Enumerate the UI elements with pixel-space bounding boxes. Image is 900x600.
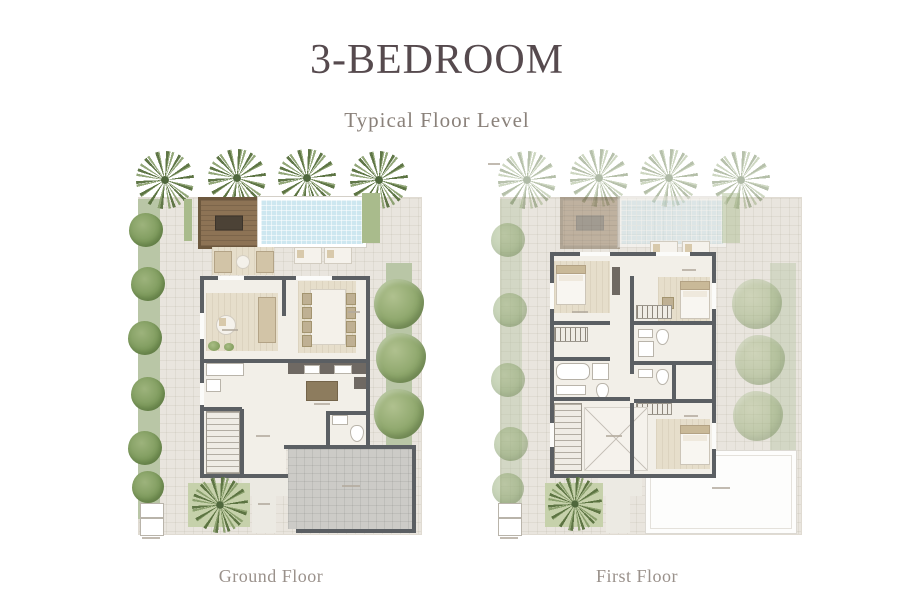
hedge [362,193,380,243]
room-label [348,311,360,313]
plant-icon [208,341,220,351]
dining-chair [346,321,356,333]
kitchen-counter [288,363,366,374]
window [550,283,554,309]
wall-segment [552,321,610,325]
wall-segment [412,445,416,533]
garage-area [288,449,412,529]
bathtub [556,363,590,380]
window [218,276,244,280]
shrub-icon [493,293,527,327]
room-label [712,487,730,489]
coffee-table [236,255,250,269]
wall-segment [550,252,716,256]
bathroom-sink [332,415,348,425]
shower [638,341,654,357]
window [580,252,610,256]
lounge-chair [324,247,352,264]
shrub-icon [131,267,165,301]
utility-box [140,503,164,518]
caption-first-floor: First Floor [488,566,786,587]
wardrobe [554,327,588,342]
entry-walkway [606,496,630,533]
wall-segment [552,357,610,361]
void-double-height [584,407,648,471]
wall-segment [630,276,634,374]
room-label [682,269,696,271]
shrub-icon [494,427,528,461]
bathroom-sink [638,369,653,378]
palm-tree-icon [192,477,248,533]
shrub-icon [129,213,163,247]
entry-walkway [252,496,276,533]
room-label [488,163,500,165]
cooktop [334,365,352,374]
sofa [258,297,276,343]
wall-segment [634,321,712,325]
wall-segment [202,407,242,411]
page-subtitle: Typical Floor Level [87,108,787,133]
floorplan-ground-floor [122,163,420,545]
staircase [554,403,582,471]
shrub-icon [492,473,524,505]
room-label [572,311,588,313]
washer [206,379,221,392]
shrub-icon [132,471,164,503]
brochure-page: 3-BEDROOM Typical Floor Level [0,0,900,600]
sun-deck [198,197,260,249]
wall-segment [634,399,712,403]
wardrobe [636,305,672,319]
outdoor-sofa [256,251,274,273]
wall-segment [326,411,330,445]
room-label [684,415,698,417]
wall-segment [296,529,416,533]
fridge [354,377,366,389]
staircase [206,411,240,474]
dining-chair [302,335,312,347]
room-label [256,435,270,437]
wall-segment [326,411,368,415]
window [712,423,716,449]
bed [556,265,586,305]
shrub-icon [131,377,165,411]
kitchen-sink [304,365,320,374]
hedge [184,199,192,241]
floorplan-first-floor [488,163,802,545]
wall-segment [672,361,676,399]
wall-segment [630,403,634,474]
caption-ground-floor: Ground Floor [122,566,420,587]
dining-chair [346,293,356,305]
utility-box [498,518,522,536]
room-label [258,503,270,505]
wall-segment [284,445,416,449]
lounge-chair [294,247,322,264]
window [200,313,204,339]
sun-deck-below [560,197,620,249]
wall-segment [284,359,368,363]
room-label [222,329,238,331]
window [712,283,716,309]
wall-segment [202,359,284,363]
shrub-icon [491,223,525,257]
armchair [216,315,236,335]
bathroom-sink [556,385,586,395]
window [200,383,204,405]
bed [680,281,710,319]
wall-segment [552,397,630,401]
dining-chair [302,321,312,333]
room-label [342,485,360,487]
bed [680,425,710,465]
swimming-pool-below [618,197,726,247]
dining-chair [302,307,312,319]
page-title: 3-BEDROOM [87,36,787,84]
kitchen-island [306,381,338,401]
entry-porch [598,478,642,496]
room-label [314,403,330,405]
shower [592,363,609,380]
dining-table [310,289,346,345]
dining-chair [346,335,356,347]
utility-box [140,518,164,536]
shrub-icon [128,431,162,465]
wall-segment [240,409,244,474]
window [550,423,554,447]
palm-tree-icon [498,151,556,209]
swimming-pool [258,197,366,247]
bathroom-sink [638,329,653,338]
plant-icon [224,343,234,351]
room-label [142,537,160,539]
utility-box [498,503,522,518]
wall-segment [200,276,204,478]
shrub-icon [128,321,162,355]
dining-chair [302,293,312,305]
window [296,276,332,280]
outdoor-sofa [214,251,232,273]
hedge [722,193,740,243]
shrub-icon [491,363,525,397]
window [656,252,690,256]
room-label [500,537,518,539]
laundry-counter [206,363,244,376]
dresser [612,267,620,295]
dining-chair [346,307,356,319]
room-label [606,435,622,437]
palm-tree-icon [548,477,602,531]
wall-segment [282,276,286,316]
